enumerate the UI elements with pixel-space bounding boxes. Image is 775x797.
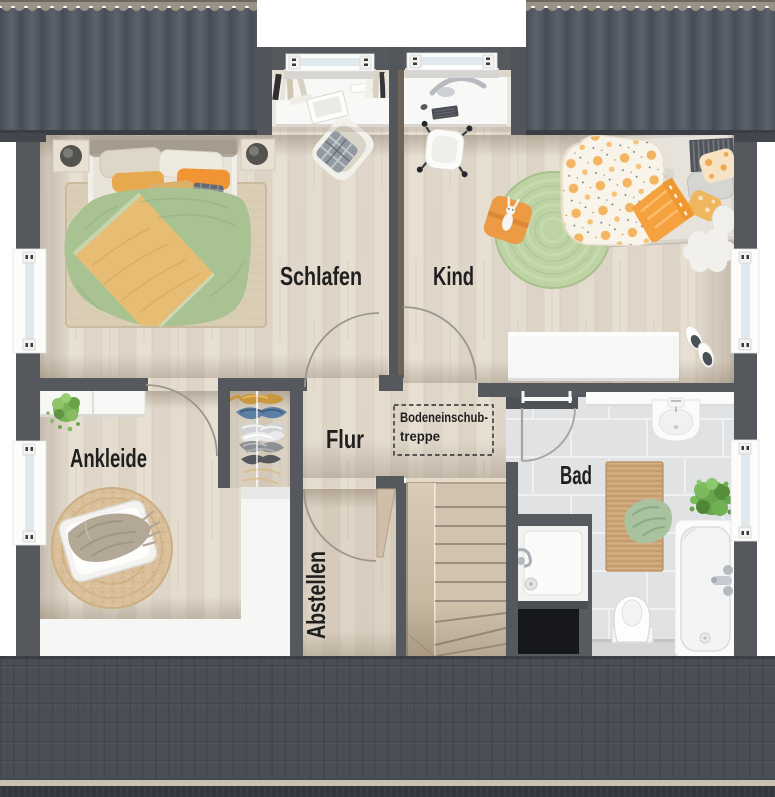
svg-text:Schlafen: Schlafen <box>280 261 362 291</box>
svg-text:Ankleide: Ankleide <box>70 443 147 473</box>
svg-text:Bad: Bad <box>560 460 592 490</box>
svg-text:Abstellen: Abstellen <box>301 551 331 639</box>
svg-text:Flur: Flur <box>326 424 364 454</box>
svg-text:treppe: treppe <box>400 429 440 444</box>
svg-text:Kind: Kind <box>433 261 474 291</box>
svg-text:Bodeneinschub-: Bodeneinschub- <box>400 410 488 425</box>
